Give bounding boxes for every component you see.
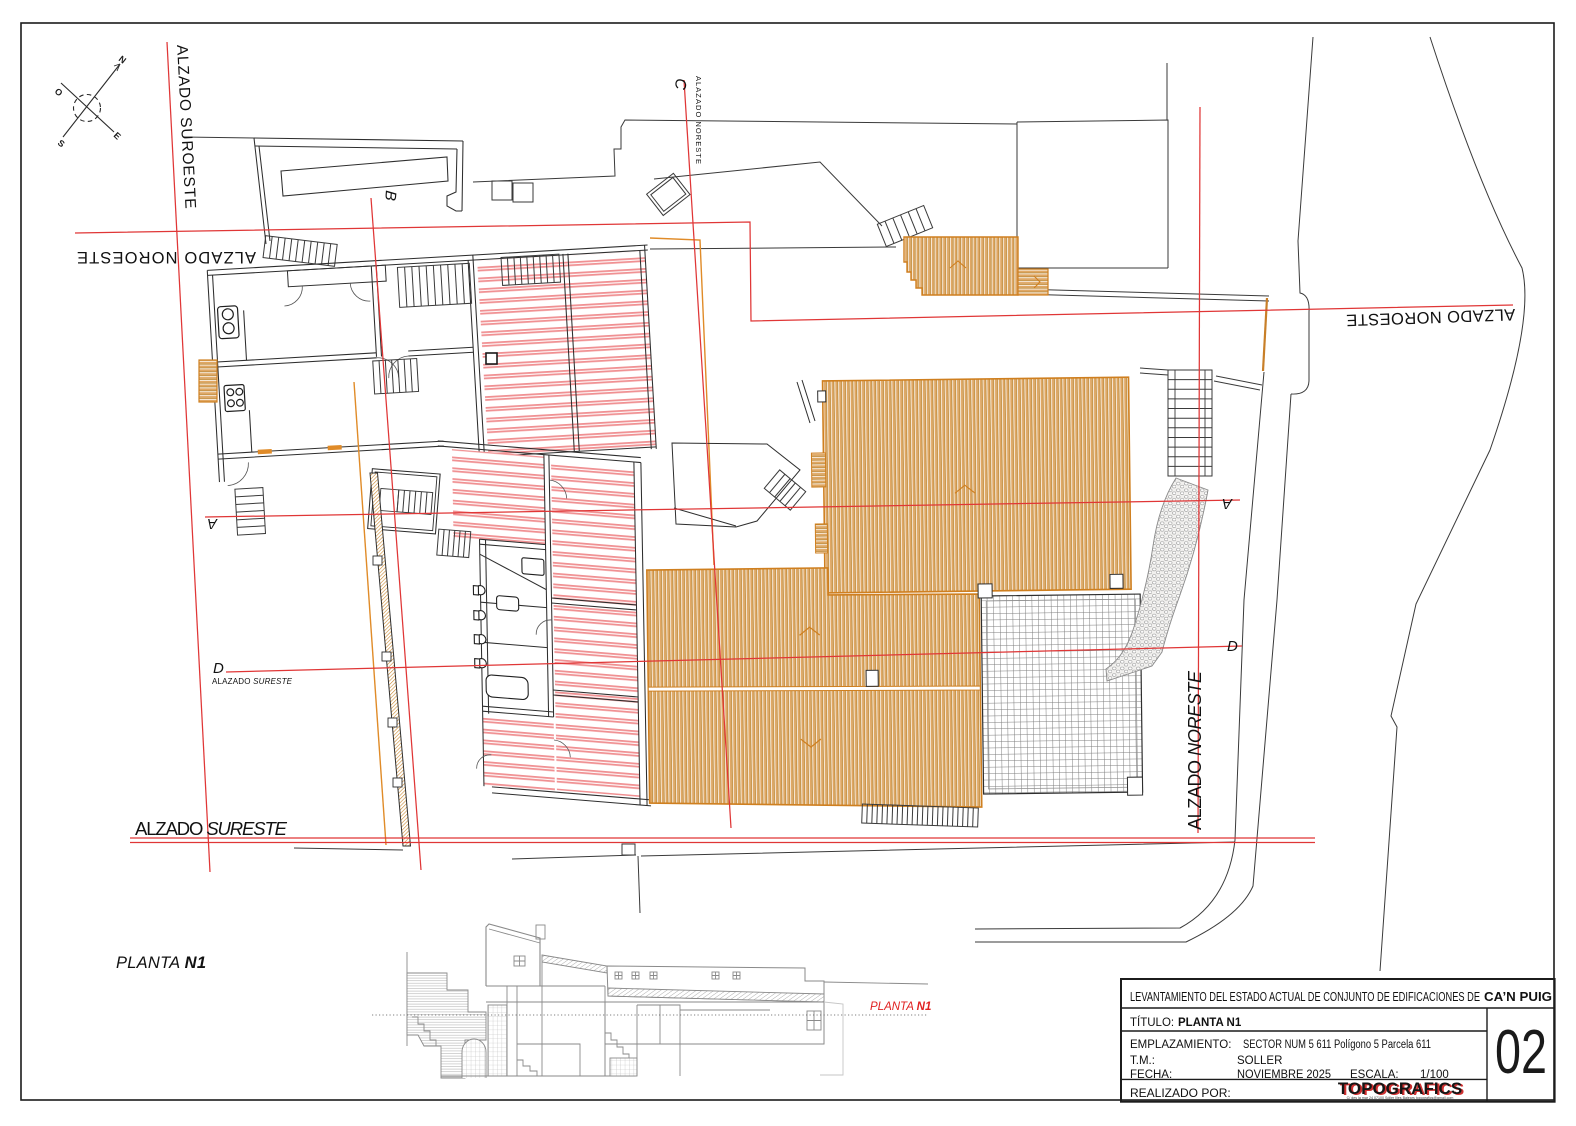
svg-text:ALZADO NOROESTE: ALZADO NOROESTE	[77, 248, 256, 266]
svg-text:ALAZADO SURESTE: ALAZADO SURESTE	[212, 677, 293, 686]
svg-text:CA’N PUIG: CA’N PUIG	[1484, 990, 1552, 1004]
svg-text:LEVANTAMIENTO DEL ESTADO ACTUA: LEVANTAMIENTO DEL ESTADO ACTUAL DE CONJU…	[1130, 990, 1480, 1004]
svg-text:02: 02	[1495, 1018, 1547, 1087]
svg-text:PLANTA N1: PLANTA N1	[1178, 1017, 1242, 1029]
svg-text:NOVIEMBRE 2025: NOVIEMBRE 2025	[1237, 1069, 1331, 1081]
svg-text:D: D	[213, 660, 224, 677]
svg-text:FECHA:: FECHA:	[1130, 1069, 1172, 1081]
svg-text:ALZADO SURESTE: ALZADO SURESTE	[135, 818, 288, 839]
svg-text:PLANTA N1: PLANTA N1	[870, 1001, 931, 1013]
svg-text:A: A	[207, 515, 218, 531]
svg-text:B: B	[381, 190, 399, 202]
svg-text:D: D	[1227, 638, 1238, 655]
svg-text:T.M.:: T.M.:	[1130, 1055, 1155, 1067]
svg-text:SECTOR NUM 5 611 Polígono 5 Pa: SECTOR NUM 5 611 Polígono 5 Parcela 611	[1243, 1039, 1431, 1051]
svg-text:ALZADO NORESTE: ALZADO NORESTE	[1185, 670, 1205, 830]
svg-text:SOLLER: SOLLER	[1237, 1055, 1282, 1067]
svg-text:EMPLAZAMIENTO:: EMPLAZAMIENTO:	[1130, 1039, 1231, 1051]
svg-text:A: A	[1222, 495, 1233, 512]
svg-text:TÍTULO:: TÍTULO:	[1130, 1016, 1174, 1029]
svg-text:C/ des la mar 24 07100 Sóller: C/ des la mar 24 07100 Sóller Illes Bale…	[1347, 1096, 1454, 1100]
svg-text:REALIZADO POR:: REALIZADO POR:	[1130, 1086, 1231, 1100]
svg-text:PLANTA N1: PLANTA N1	[116, 954, 206, 972]
svg-text:ALAZADO NORESTE: ALAZADO NORESTE	[694, 76, 703, 164]
